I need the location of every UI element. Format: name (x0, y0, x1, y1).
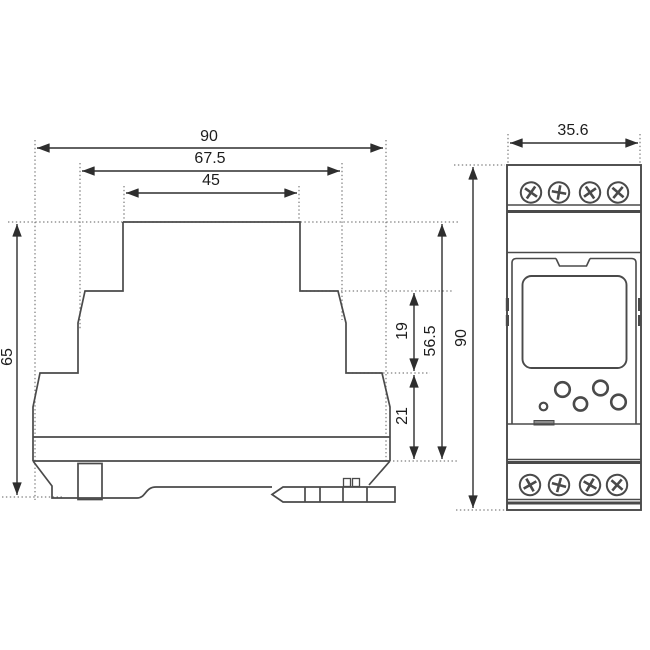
screw-terminal-icon (604, 178, 633, 207)
dim-label-front-width: 35.6 (557, 123, 588, 139)
dim-label-side-top-width: 45 (202, 173, 220, 189)
screw-terminal-icon (547, 181, 571, 205)
dim-label-side-body-height: 56.5 (423, 325, 439, 356)
cover-edge-left (512, 259, 556, 425)
din-clip-pocket (78, 464, 102, 500)
technical-drawing: 90 67.5 45 65 19 56.5 21 35.6 90 (0, 0, 650, 650)
control-button (611, 395, 626, 410)
cover-latch-tab (556, 259, 590, 267)
front-view-drawing (506, 165, 641, 510)
screw-terminal-icon (516, 471, 544, 499)
side-view-drawing (33, 222, 395, 502)
display-panel (523, 276, 627, 368)
control-button (574, 397, 587, 410)
screw-terminal-icon (603, 471, 632, 500)
screw-terminal-icon (517, 178, 545, 206)
hinge-mark (638, 315, 641, 326)
dim-label-front-height: 90 (454, 329, 470, 347)
led-indicator (540, 403, 548, 411)
side-outline-left (33, 222, 123, 461)
din-rail-clip (272, 487, 395, 502)
dim-label-side-total-height: 65 (0, 348, 16, 366)
hinge-mark (506, 315, 509, 326)
dim-label-side-upper-step: 19 (395, 322, 411, 340)
hinge-mark (638, 298, 641, 311)
clip-lug (344, 479, 351, 487)
control-button (593, 381, 608, 396)
dim-label-side-total-width: 90 (200, 129, 218, 145)
dimension-lines (17, 143, 638, 508)
side-foot-right (369, 461, 390, 485)
extension-lines (2, 134, 640, 510)
side-foot-left (33, 461, 272, 498)
drawing-svg (0, 0, 650, 650)
control-button (555, 382, 570, 397)
screw-terminal-icon (576, 178, 604, 206)
screw-terminal-icon (576, 471, 604, 499)
screw-terminal-icon (547, 473, 572, 498)
hinge-mark (506, 298, 509, 311)
clip-lug (353, 479, 360, 487)
dim-label-side-upper-width: 67.5 (194, 151, 225, 167)
dim-label-side-lower-step: 21 (395, 407, 411, 425)
side-outline-right (123, 222, 390, 461)
front-body-outline (507, 165, 641, 510)
